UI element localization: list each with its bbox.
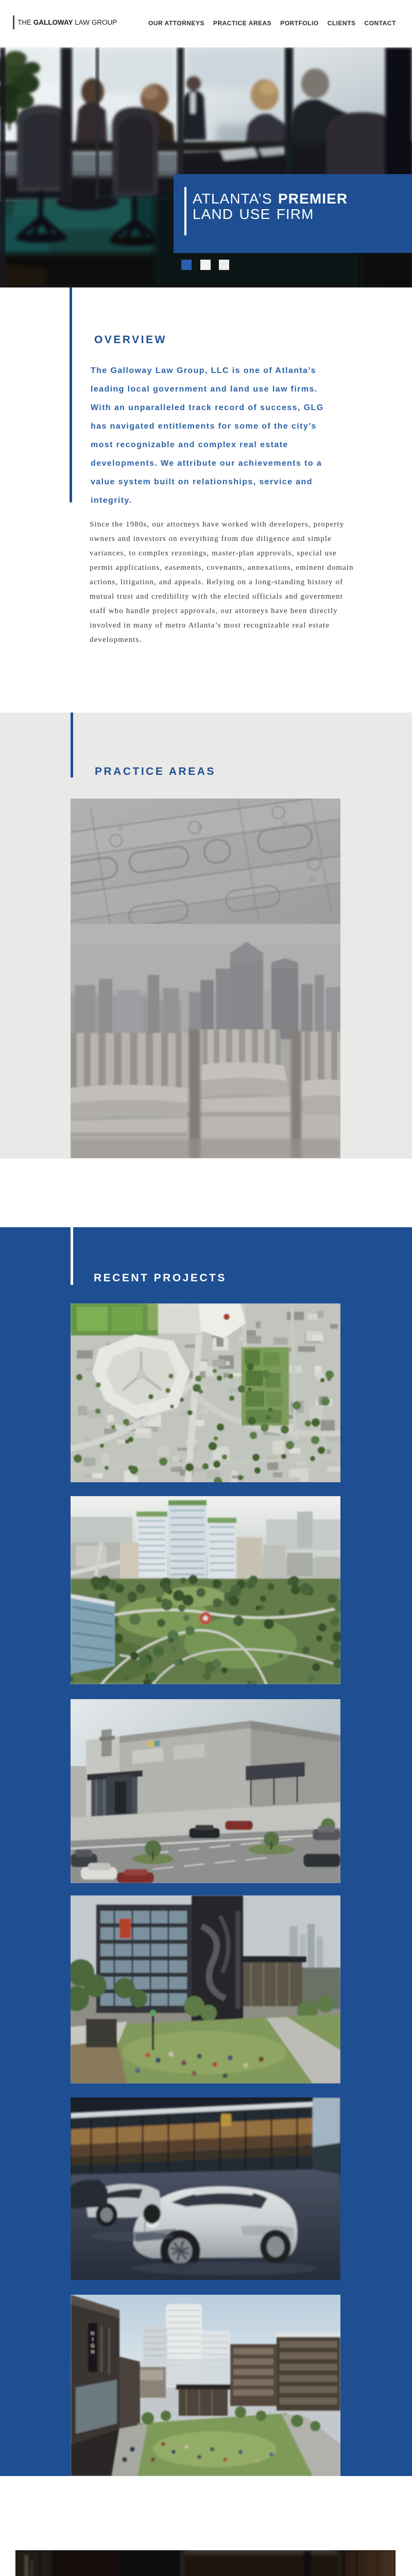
svg-text:H: H: [91, 2349, 95, 2354]
svg-text:G: G: [91, 2343, 94, 2348]
svg-text:H: H: [91, 2331, 95, 2336]
svg-text:I: I: [92, 2337, 94, 2342]
